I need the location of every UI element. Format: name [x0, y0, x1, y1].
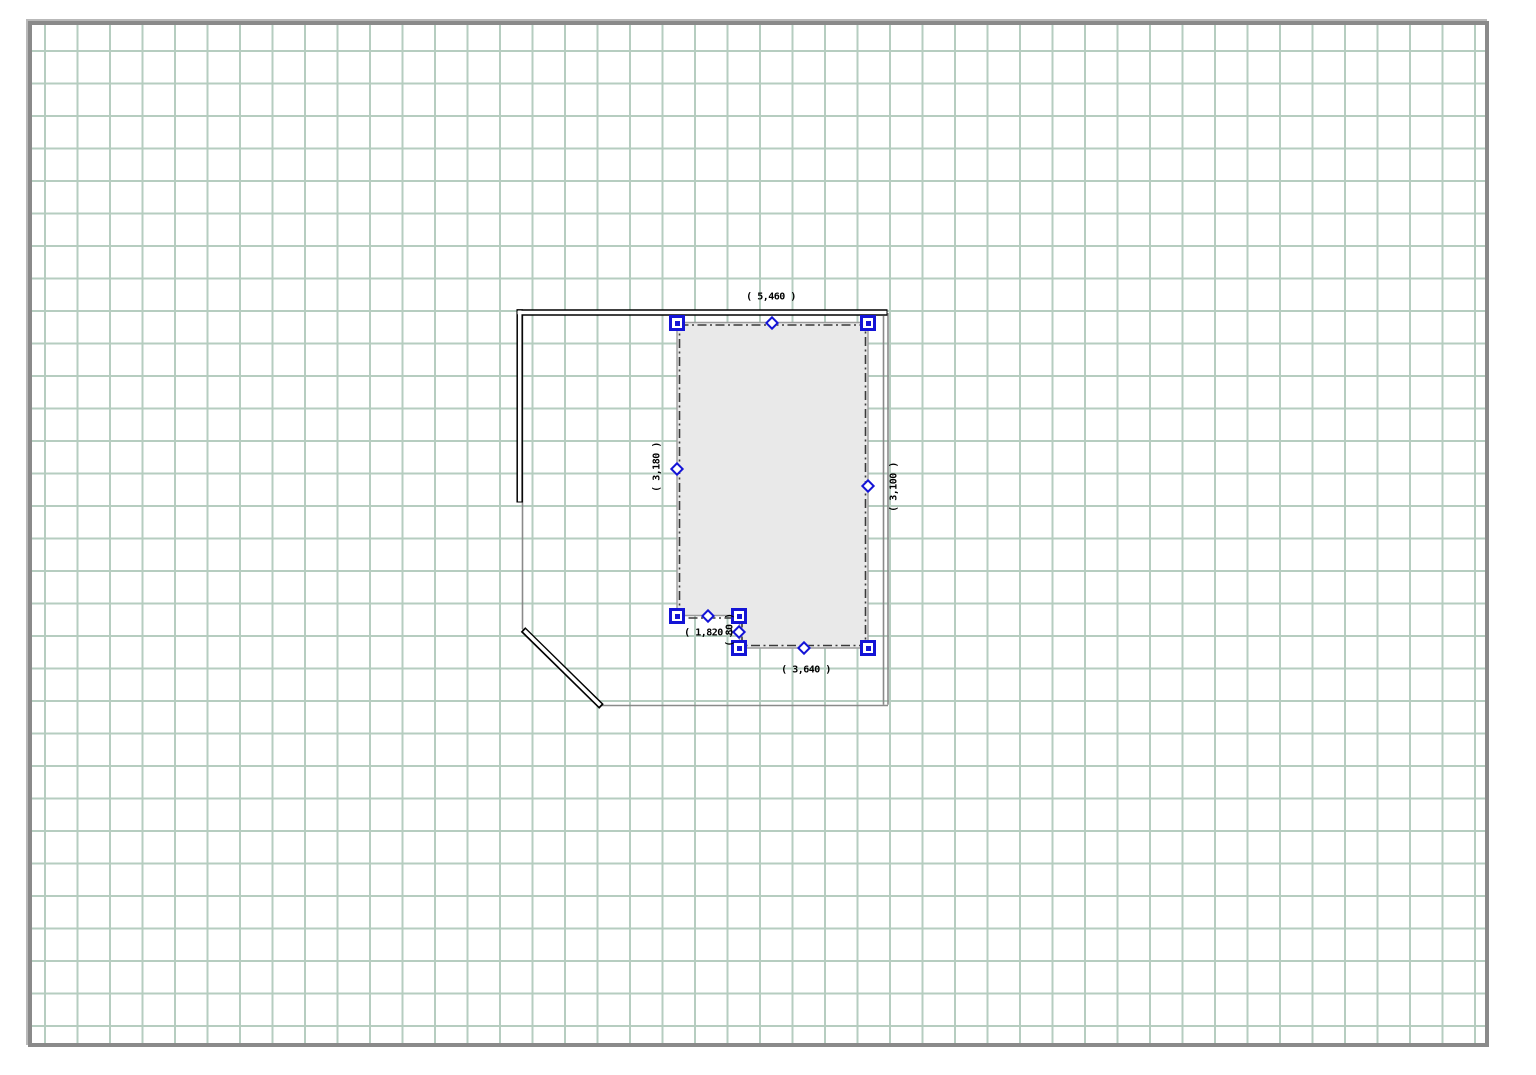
dimension-label-left: ( 3,180 ): [652, 442, 663, 492]
handle-dot: [737, 614, 742, 619]
dimension-label-bottom: ( 3,640 ): [781, 665, 831, 676]
handle-dot: [866, 321, 871, 326]
selection-handle-corner-notch-left[interactable]: [669, 608, 685, 624]
handle-dot: [866, 646, 871, 651]
handle-dot: [675, 614, 680, 619]
dimension-label-top: ( 5,460 ): [746, 292, 796, 303]
dimension-label-step: ( 80 ): [725, 613, 736, 646]
selected-floor-area[interactable]: [677, 323, 868, 649]
handle-dot: [675, 321, 680, 326]
handle-dot: [737, 646, 742, 651]
selection-handle-corner-bottom-right[interactable]: [860, 640, 876, 656]
selection-handle-corner-top-left[interactable]: [669, 315, 685, 331]
dimension-label-right: ( 3,100 ): [889, 462, 900, 512]
selection-handle-corner-top-right[interactable]: [860, 315, 876, 331]
